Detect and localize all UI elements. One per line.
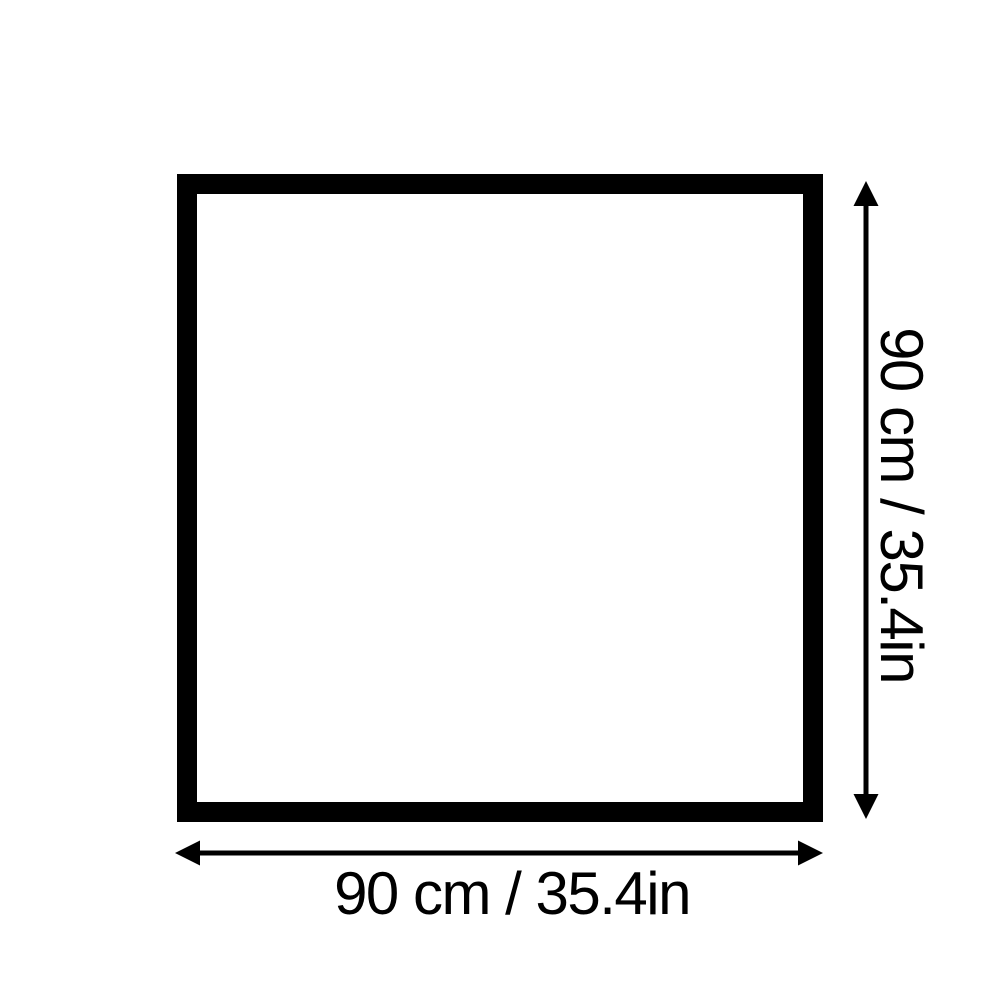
height-dimension-label: 90 cm / 35.4in [871,327,931,683]
square-outline [177,174,823,822]
dimension-diagram: 90 cm / 35.4in 90 cm / 35.4in [0,0,1000,1000]
arrowhead-left-icon [175,841,200,866]
arrowhead-up-icon [854,181,879,206]
width-dimension-label: 90 cm / 35.4in [334,864,690,924]
arrowhead-down-icon [854,794,879,819]
arrowhead-right-icon [798,841,823,866]
